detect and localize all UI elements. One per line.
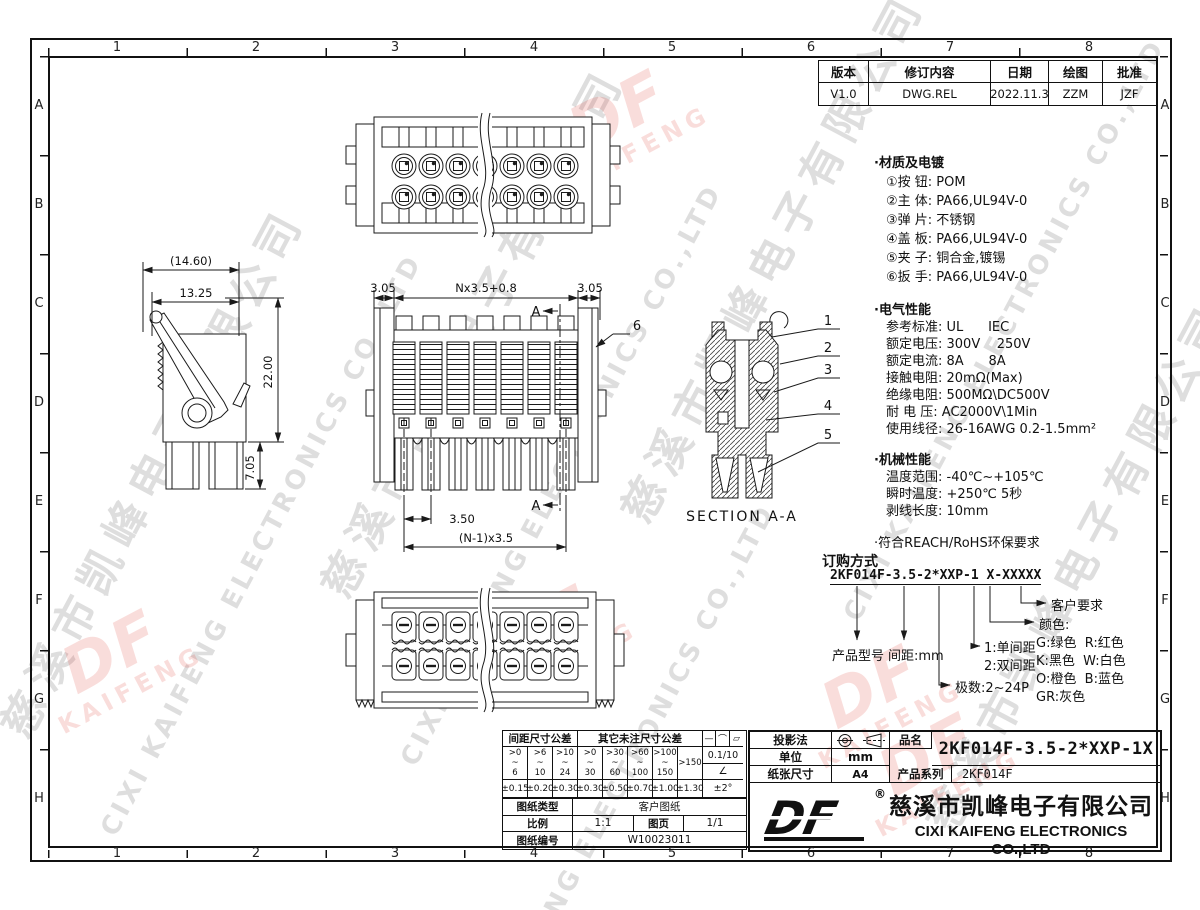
electrical-line: 参考标准: UL IEC [886, 319, 1170, 336]
ordering-model-label: 产品型号 [832, 645, 884, 664]
grid-col-label: 2 [246, 846, 266, 861]
revision-header-content: 修订内容 [869, 61, 991, 83]
drawing-info-table: 图纸类型 客户图纸 比例 1:1 图页 1/1 图纸编号 W10023011 [502, 798, 747, 850]
electrical-line: 耐 电 压: AC2000V\1Min [886, 404, 1170, 421]
revision-date: 2022.11.3 [991, 83, 1049, 105]
tolerance-range: >150 [678, 747, 703, 780]
material-line: ③弹 片: 不锈钢 [886, 211, 1170, 230]
tolerance-range: >30 ~ 60 [603, 747, 628, 780]
unit-value: mm [832, 749, 890, 766]
third-angle-projection-icon [835, 733, 887, 748]
grid-row-label: F [1155, 593, 1175, 608]
angle-symbol: ∠ [703, 764, 743, 780]
mechanical-line: 瞬时温度: +250℃ 5秒 [886, 486, 1170, 503]
tolerance-range: >0 ~ 30 [578, 747, 603, 780]
revision-header-date: 日期 [991, 61, 1049, 83]
grid-row-label: A [1155, 98, 1175, 113]
tolerance-value: ±1.00 [653, 780, 678, 797]
grid-row-label: F [29, 593, 49, 608]
mechanical-line: 温度范围: -40℃~+105℃ [886, 469, 1170, 486]
material-line: ①按 钮: POM [886, 173, 1170, 192]
revision-drawn-by: ZZM [1049, 83, 1103, 105]
grid-row-label: B [29, 197, 49, 212]
specifications: ·材质及电镀 ①按 钮: POM ②主 体: PA66,UL94V-0 ③弹 片… [874, 154, 1170, 551]
symbol-flatness: ▱ [730, 731, 743, 747]
projection-symbol [832, 732, 890, 749]
title-block: 投影法 品名 2KF014F-3.5-2*XXP-1X 单位 mm 纸张尺寸 A… [748, 730, 1162, 852]
grid-col-label: 4 [524, 40, 544, 55]
ordering-color-label: 颜色: [1039, 614, 1069, 633]
mechanical-line: 剥线长度: 10mm [886, 503, 1170, 520]
revision-approved-by: JZF [1103, 83, 1156, 105]
material-section: ·材质及电镀 ①按 钮: POM ②主 体: PA66,UL94V-0 ③弹 片… [874, 154, 1170, 287]
grid-ticks-top [48, 48, 1158, 56]
ordering-color-option: G:绿色 R:红色 [1036, 632, 1124, 651]
tolerance-range: >0 ~ 6 [503, 747, 528, 780]
drawing-number-label: 图纸编号 [503, 832, 573, 849]
electrical-line: 额定电流: 8A 8A [886, 353, 1170, 370]
electrical-line: 绝缘电阻: 500MΩ\DC500V [886, 387, 1170, 404]
unit-label: 单位 [750, 749, 832, 766]
grid-col-label: 3 [385, 846, 405, 861]
grid-row-label: E [29, 494, 49, 509]
ordering-customer-label: 客户要求 [1051, 595, 1103, 614]
drawing-number-value: W10023011 [573, 832, 746, 849]
company-logo-icon: DF [758, 792, 870, 842]
mechanical-section: ·机械性能 温度范围: -40℃~+105℃ 瞬时温度: +250℃ 5秒 剥线… [874, 452, 1170, 520]
revision-version: V1.0 [819, 83, 869, 105]
revision-content: DWG.REL [869, 83, 991, 105]
grid-col-label: 8 [1079, 40, 1099, 55]
ordering-color-option: GR:灰色 [1036, 686, 1085, 705]
grid-col-label: 5 [662, 40, 682, 55]
product-series-value: 2KF014F [952, 766, 1160, 783]
product-series-label: 产品系列 [890, 766, 952, 783]
grid-col-label: 2 [246, 40, 266, 55]
electrical-line: 接触电阻: 20mΩ(Max) [886, 370, 1170, 387]
electrical-section: ·电气性能 参考标准: UL IEC 额定电压: 300V 250V 额定电流:… [874, 302, 1170, 438]
grid-col-label: 1 [107, 40, 127, 55]
tolerance-range: >6 ~ 10 [528, 747, 553, 780]
revision-header-approved: 批准 [1103, 61, 1156, 83]
material-line: ④盖 板: PA66,UL94V-0 [886, 230, 1170, 249]
scale-value: 1:1 [573, 816, 634, 833]
tolerance-range: >60 ~ 100 [628, 747, 653, 780]
material-line: ②主 体: PA66,UL94V-0 [886, 192, 1170, 211]
grid-col-label: 1 [107, 846, 127, 861]
tolerance-value: ±0.50 [603, 780, 628, 797]
page-value: 1/1 [684, 816, 746, 833]
tolerance-table: 间距尺寸公差 其它未注尺寸公差 — ⌒ ▱ >0 ~ 6 >6 ~ 10 >10… [502, 730, 747, 798]
tolerance-header-other: 其它未注尺寸公差 [578, 731, 703, 747]
scale-label: 比例 [503, 816, 573, 833]
symbol-straightness: — [703, 731, 716, 747]
drawing-sheet: 慈溪市凯峰电子有限公司 CIXI KAIFENG ELECTRONICS CO.… [0, 0, 1200, 910]
ordering-pitch2-label: 2:双间距 [984, 655, 1036, 674]
grid-row-label: G [29, 692, 49, 707]
electrical-line: 额定电压: 300V 250V [886, 336, 1170, 353]
company-name-en: CIXI KAIFENG ELECTRONICS CO.,LTD [888, 823, 1154, 843]
grid-row-label: A [29, 98, 49, 113]
grid-row-label: G [1155, 692, 1175, 707]
paper-size-label: 纸张尺寸 [750, 766, 832, 783]
grid-col-label: 6 [801, 40, 821, 55]
tolerance-value: ±0.20 [528, 780, 553, 797]
grid-ticks-left [40, 56, 48, 848]
tolerance-value: ±0.30 [553, 780, 578, 797]
ordering-color-option: K:黑色 W:白色 [1036, 650, 1126, 669]
tolerance-value: ±0.70 [628, 780, 653, 797]
product-name-label: 品名 [890, 732, 932, 749]
product-name-value: 2KF014F-3.5-2*XXP-1X [932, 732, 1160, 766]
tolerance-header-pitch: 间距尺寸公差 [503, 731, 578, 747]
compliance-note: ·符合REACH/RoHS环保要求 [874, 532, 1170, 551]
grid-col-label: 7 [940, 40, 960, 55]
tolerance-value: ±1.30 [678, 780, 703, 797]
material-line: ⑥扳 手: PA66,UL94V-0 [886, 268, 1170, 287]
drawing-type-value: 客户图纸 [573, 799, 746, 816]
company-name-cn: 慈溪市凯峰电子有限公司 [888, 791, 1154, 823]
projection-label: 投影法 [750, 732, 832, 749]
revision-header-drawn: 绘图 [1049, 61, 1103, 83]
tolerance-value: ±0.30 [578, 780, 603, 797]
ordering-code: 2KF014F-3.5-2*XXP-1 X-XXXXX [830, 568, 1041, 585]
ordering-color-option: O:橙色 B:蓝色 [1036, 668, 1124, 687]
company-block: DF ® 慈溪市凯峰电子有限公司 CIXI KAIFENG ELECTRONIC… [750, 783, 1160, 850]
material-title: ·材质及电镀 [874, 154, 1170, 173]
grid-row-label: C [29, 296, 49, 311]
drawing-type-label: 图纸类型 [503, 799, 573, 816]
revision-table: 版本 修订内容 日期 绘图 批准 V1.0 DWG.REL 2022.11.3 … [818, 60, 1157, 106]
grid-col-label: 3 [385, 40, 405, 55]
revision-header-version: 版本 [819, 61, 869, 83]
ordering-poles-label: 极数:2~24P [955, 677, 1029, 696]
symbol-arc: ⌒ [716, 731, 730, 747]
tolerance-range: >100 ~ 150 [653, 747, 678, 780]
material-line: ⑤夹 子: 铜合金,镀锡 [886, 249, 1170, 268]
grid-row-label: D [29, 395, 49, 410]
page-label: 图页 [634, 816, 684, 833]
electrical-line: 使用线径: 26-16AWG 0.2-1.5mm² [886, 421, 1170, 438]
registered-mark: ® [874, 787, 886, 801]
flatness-tolerance: 0.1/10 [703, 747, 743, 764]
angle-tolerance: ±2° [703, 780, 743, 797]
tolerance-range: >10 ~ 24 [553, 747, 578, 780]
tolerance-value: ±0.15 [503, 780, 528, 797]
paper-size-value: A4 [832, 766, 890, 783]
ordering-pitch-label: 间距:mm [888, 645, 944, 664]
electrical-title: ·电气性能 [874, 302, 1170, 319]
ordering-pitch1-label: 1:单间距 [984, 637, 1036, 656]
mechanical-title: ·机械性能 [874, 452, 1170, 469]
grid-row-label: H [29, 791, 49, 806]
